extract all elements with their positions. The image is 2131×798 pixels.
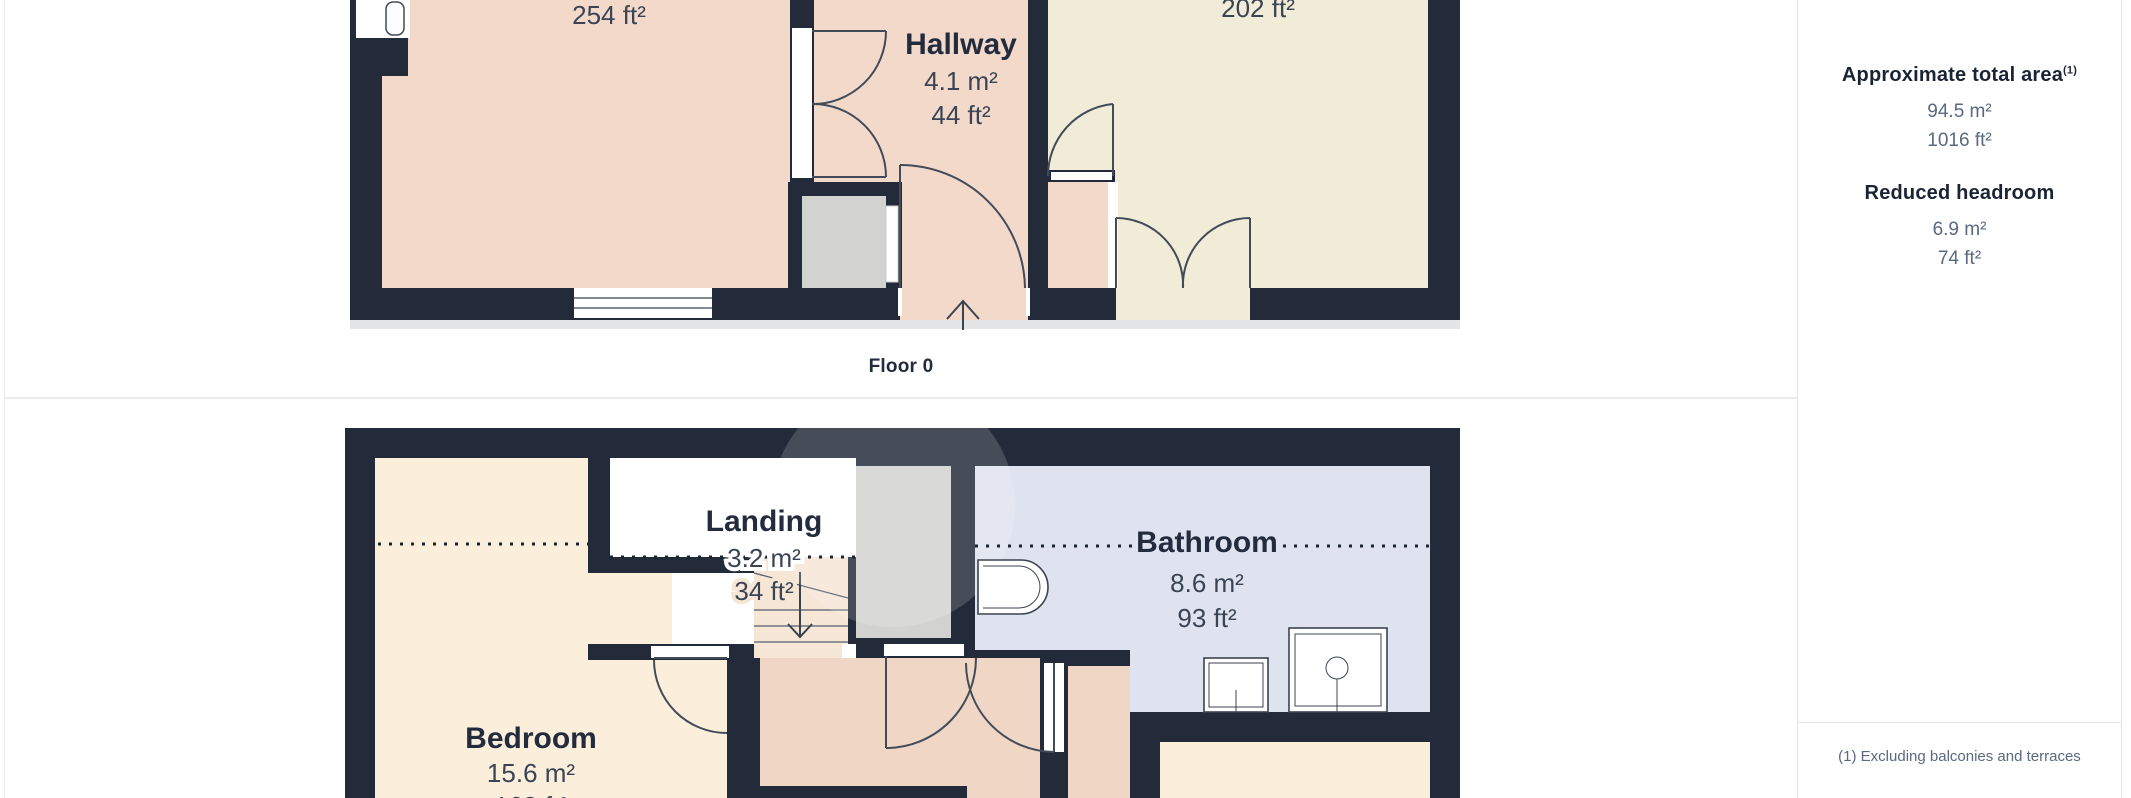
bedroom-m2-label: 15.6 m²: [487, 758, 575, 788]
doorway-frame: [842, 644, 856, 658]
wall-segment: [737, 786, 967, 798]
closet-door-frame: [886, 206, 898, 282]
reduced-headroom-ft2: 74 ft²: [1798, 244, 2121, 273]
bathtub-icon: [978, 560, 1048, 614]
door-leaf-icon: [386, 2, 404, 35]
footnote-text: (1) Excluding balconies and terraces: [1798, 748, 2121, 765]
total-area-m2: 94.5 m²: [1798, 97, 2121, 126]
french-door-opening: [1116, 288, 1250, 320]
doorway-frame: [1026, 288, 1030, 316]
bedroom-name-label: Bedroom: [465, 722, 597, 755]
doorway-frame: [651, 646, 729, 658]
hallway-name-label: Hallway: [905, 28, 1017, 61]
reduced-headroom-m2: 6.9 m²: [1798, 215, 2121, 244]
living-area-label: 254 ft²: [572, 0, 646, 30]
bathroom-name-label: Bathroom: [1136, 526, 1278, 559]
floor0-caption: Floor 0: [771, 356, 1031, 378]
room-living: [382, 0, 790, 288]
footnote-divider: [1798, 722, 2121, 723]
room-bedroom: [588, 573, 672, 644]
reduced-headroom-heading: Reduced headroom: [1798, 182, 2121, 205]
kitchen-area-label: 202 ft²: [1221, 0, 1295, 23]
summary-sidebar: Approximate total area(1) 94.5 m² 1016 f…: [1797, 0, 2122, 798]
hallway-ft2-label: 44 ft²: [931, 100, 991, 130]
window: [574, 288, 712, 318]
hallway-m2-label: 4.1 m²: [924, 66, 998, 96]
room-corridor: [760, 658, 1040, 798]
wall-step: [382, 36, 408, 76]
shower-icon: [1289, 628, 1387, 712]
total-area-ft2: 1016 ft²: [1798, 126, 2121, 155]
page-left-border: [4, 0, 5, 798]
bathroom-m2-label: 8.6 m²: [1170, 568, 1244, 598]
closet-shaft: [802, 196, 886, 288]
section-divider: [4, 397, 1797, 399]
doorway-frame: [898, 288, 902, 316]
room-bottom-right: [1160, 742, 1430, 798]
floorplan-floor1[interactable]: Landing 3.2 m² 34 ft² Bathroom 8.6 m² 93…: [340, 425, 1470, 798]
landing-name-label: Landing: [706, 505, 823, 538]
doorway-frame: [1051, 172, 1112, 180]
total-area-heading: Approximate total area(1): [1798, 64, 2121, 87]
wall-shadow: [350, 320, 1460, 329]
doorway-frame: [884, 644, 964, 656]
footnote-marker: (1): [2063, 64, 2077, 76]
landing-m2-label: 3.2 m²: [727, 543, 801, 573]
room-vestibule: [1048, 182, 1112, 288]
room-corridor: [1068, 666, 1130, 798]
landing-ft2-label: 34 ft²: [734, 576, 794, 606]
floorplan-floor0[interactable]: 254 ft² 202 ft² Hallway 4.1 m² 44 ft²: [340, 0, 1470, 330]
bedroom-ft2-label: 168 ft²: [494, 791, 568, 798]
bathroom-ft2-label: 93 ft²: [1177, 603, 1237, 633]
doorway-frame: [792, 28, 812, 178]
